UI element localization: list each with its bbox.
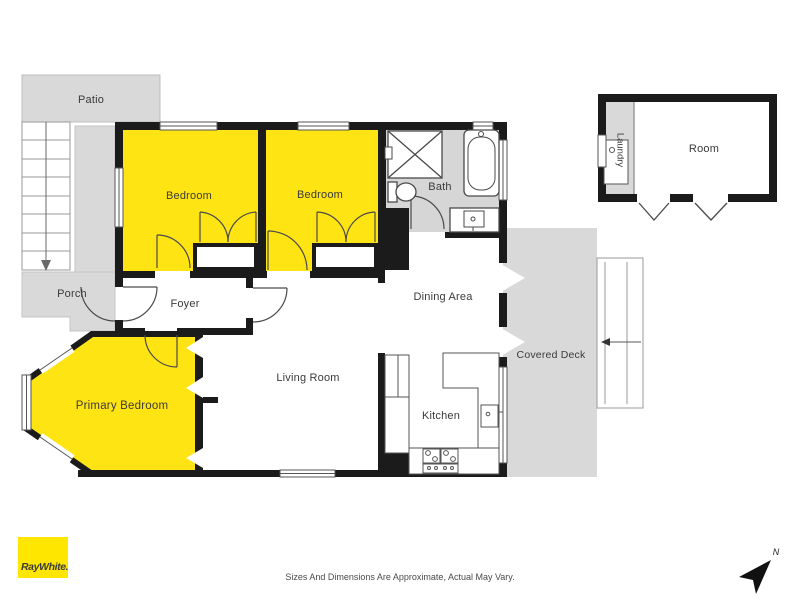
porch-label: Porch	[57, 288, 87, 300]
laundry-label: Laundry	[615, 133, 626, 167]
closet-bedroom1	[195, 245, 256, 269]
kitchen-counter	[443, 353, 499, 452]
shower	[385, 131, 442, 178]
primary-bedroom-label: Primary Bedroom	[76, 400, 168, 412]
steps-left	[22, 122, 70, 270]
patio-label: Patio	[78, 94, 104, 106]
north-arrow-icon	[739, 560, 771, 594]
toilet	[388, 182, 416, 202]
laundry-window	[598, 135, 606, 167]
foyer-label: Foyer	[170, 298, 199, 310]
floor-plan-drawing	[0, 0, 800, 600]
bathtub	[464, 130, 499, 196]
kitchen-tall-cabinets	[385, 355, 409, 453]
covered-deck-label: Covered Deck	[517, 349, 586, 361]
kitchen-label: Kitchen	[422, 410, 460, 422]
room-door-swings	[639, 203, 727, 220]
stove	[423, 449, 458, 473]
floor-plan: Patio Porch Foyer Bedroom Bedroom Bath D…	[0, 0, 800, 600]
disclaimer-text: Sizes And Dimensions Are Approximate, Ac…	[285, 572, 514, 582]
living-label: Living Room	[276, 372, 339, 384]
raywhite-logo-text: RayWhite.	[21, 561, 68, 573]
north-label: N	[773, 547, 780, 557]
closet-bedroom2	[314, 245, 376, 269]
vanity-sink	[450, 208, 499, 232]
bath-label: Bath	[428, 181, 451, 193]
bedroom1-label: Bedroom	[166, 190, 212, 202]
bedroom2-label: Bedroom	[297, 189, 343, 201]
room-label: Room	[689, 143, 719, 155]
raywhite-logo: RayWhite.	[18, 537, 68, 578]
deck-stairs	[597, 258, 643, 408]
dining-label: Dining Area	[413, 291, 472, 303]
